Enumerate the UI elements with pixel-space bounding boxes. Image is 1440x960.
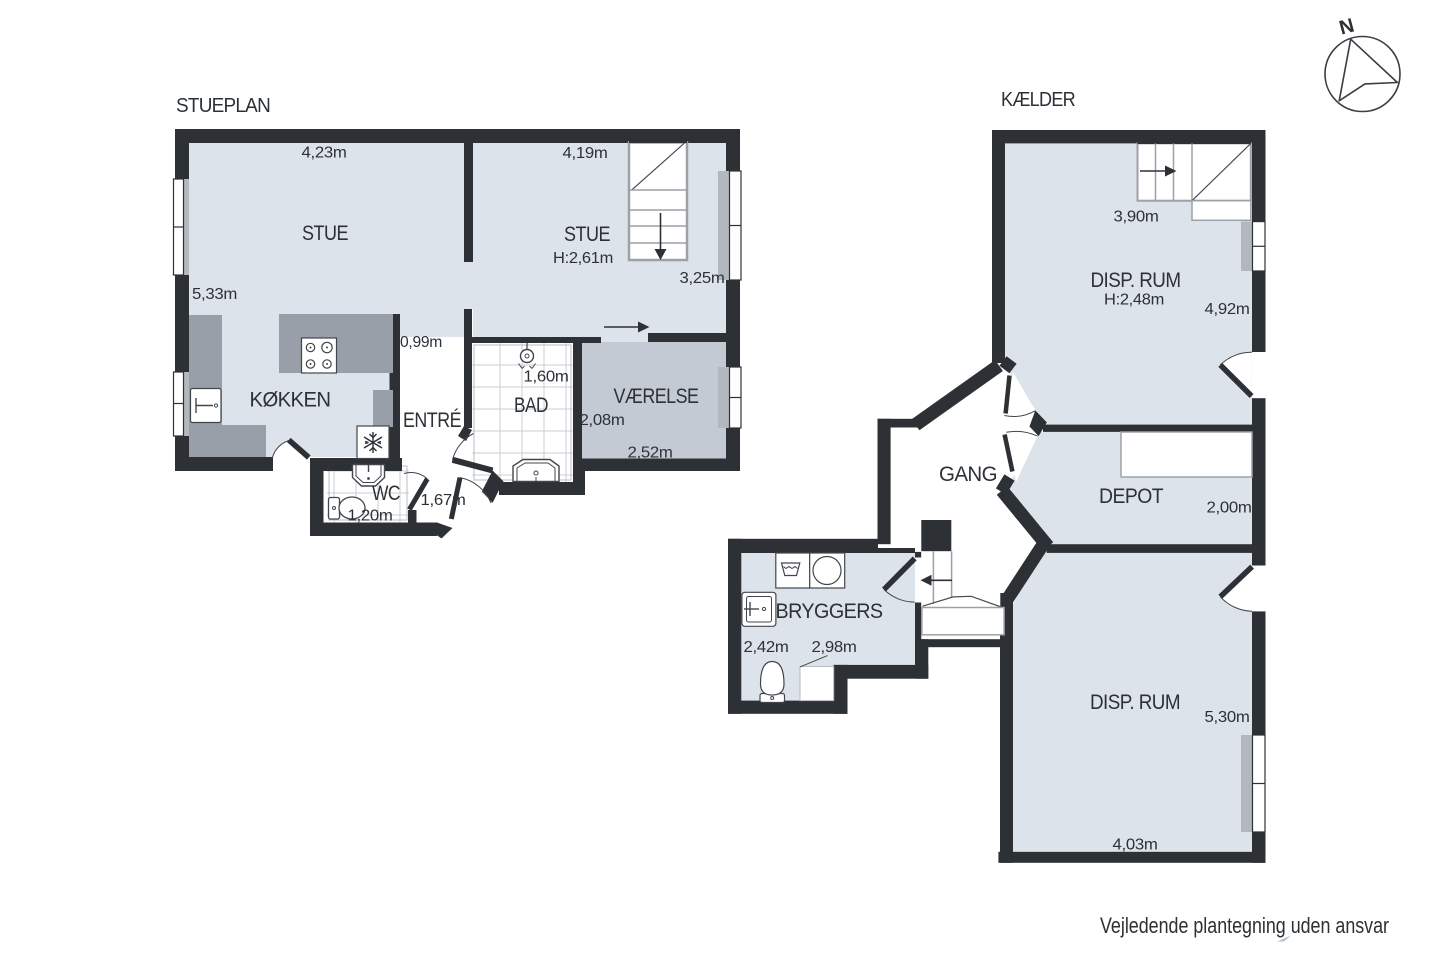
svg-text:4,03m: 4,03m: [1113, 837, 1158, 854]
svg-text:1,60m: 1,60m: [524, 369, 569, 386]
svg-text:Vejledende plantegning uden an: Vejledende plantegning uden ansvar: [1100, 913, 1389, 938]
svg-text:H:2,48m: H:2,48m: [1104, 292, 1164, 309]
svg-text:1,20m: 1,20m: [348, 508, 393, 525]
svg-text:KØKKEN: KØKKEN: [250, 389, 331, 412]
svg-text:DEPOT: DEPOT: [1099, 485, 1164, 508]
svg-text:GANG: GANG: [939, 463, 997, 486]
svg-text:WC: WC: [372, 482, 400, 505]
svg-text:3,90m: 3,90m: [1114, 209, 1159, 226]
svg-text:4,23m: 4,23m: [302, 145, 347, 162]
svg-text:VÆRELSE: VÆRELSE: [614, 385, 699, 408]
svg-text:STUEPLAN: STUEPLAN: [176, 94, 270, 117]
svg-text:2,52m: 2,52m: [628, 445, 673, 462]
svg-text:2,42m: 2,42m: [744, 639, 789, 656]
svg-text:KÆLDER: KÆLDER: [1001, 88, 1075, 111]
svg-text:ENTRÉ: ENTRÉ: [403, 409, 461, 432]
svg-text:2,98m: 2,98m: [812, 639, 857, 656]
svg-text:BAD: BAD: [514, 394, 548, 417]
svg-text:H:2,61m: H:2,61m: [553, 250, 613, 267]
svg-text:4,19m: 4,19m: [563, 145, 608, 162]
svg-text:0,99m: 0,99m: [400, 334, 442, 351]
svg-text:2,08m: 2,08m: [580, 412, 625, 429]
svg-text:STUE: STUE: [302, 222, 349, 245]
svg-text:1,67m: 1,67m: [421, 492, 466, 509]
svg-text:STUE: STUE: [564, 223, 611, 246]
svg-text:2,00m: 2,00m: [1207, 500, 1252, 517]
svg-text:DISP. RUM: DISP. RUM: [1090, 691, 1180, 714]
svg-text:DISP. RUM: DISP. RUM: [1091, 269, 1181, 292]
svg-text:5,33m: 5,33m: [192, 286, 237, 303]
svg-text:4,92m: 4,92m: [1205, 301, 1250, 318]
svg-text:BRYGGERS: BRYGGERS: [776, 600, 884, 623]
svg-text:3,25m: 3,25m: [680, 270, 725, 287]
svg-text:5,30m: 5,30m: [1205, 709, 1250, 726]
